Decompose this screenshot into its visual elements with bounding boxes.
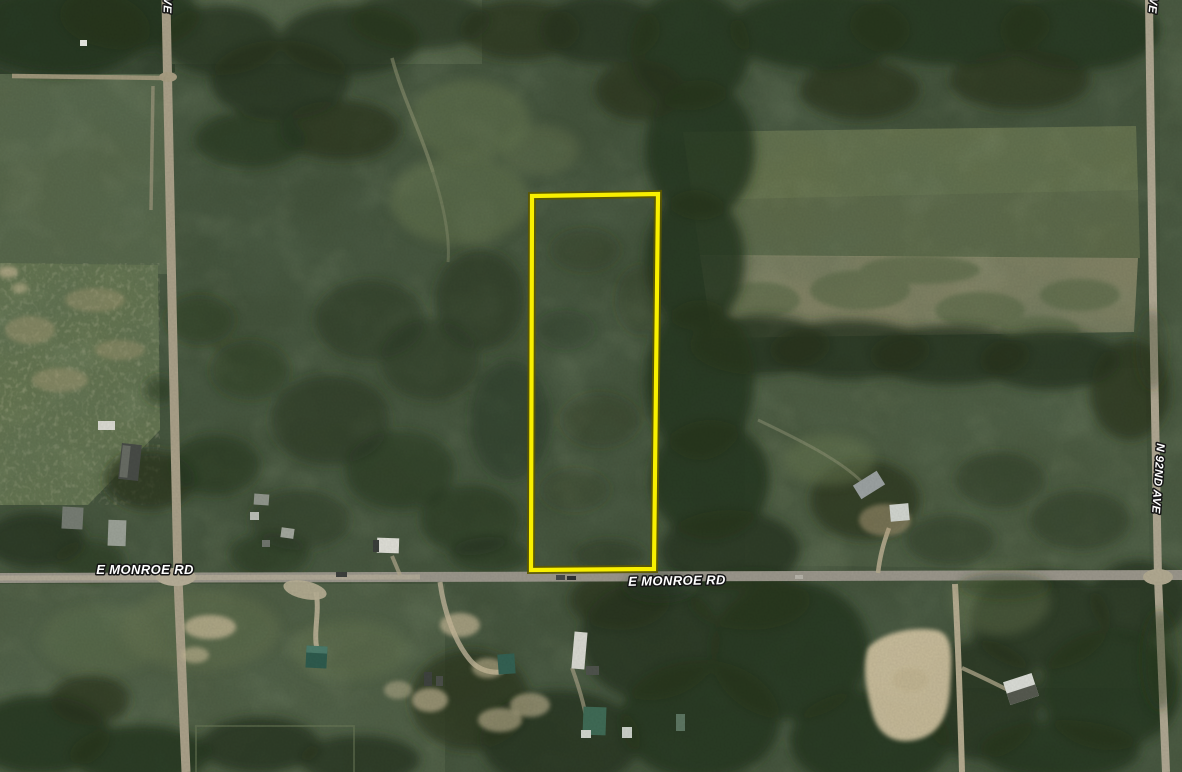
terrain-grain <box>0 0 1182 772</box>
road-label-top-right-partial: VE <box>1146 0 1159 14</box>
aerial-map-canvas[interactable]: E MONROE RD E MONROE RD N 92ND AVE VE VE <box>0 0 1182 772</box>
aerial-map: E MONROE RD E MONROE RD N 92ND AVE VE VE <box>0 0 1182 772</box>
road-label-top-left-partial: VE <box>160 0 173 13</box>
road-label-e-monroe-east: E MONROE RD <box>628 572 726 589</box>
road-label-e-monroe-west: E MONROE RD <box>96 562 194 577</box>
